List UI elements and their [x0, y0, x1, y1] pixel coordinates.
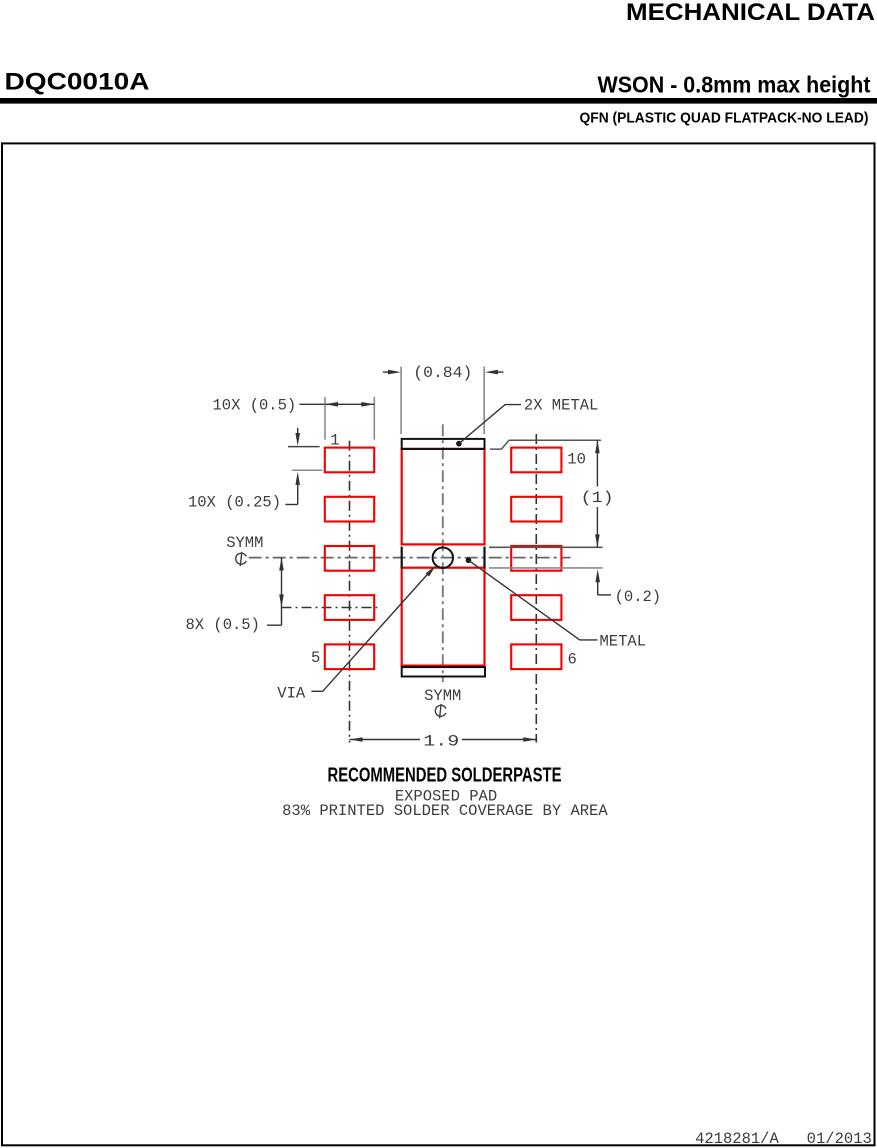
- svg-text:MECHANICAL DATA: MECHANICAL DATA: [626, 0, 875, 26]
- svg-text:6: 6: [568, 651, 577, 669]
- svg-text:DQC0010A: DQC0010A: [5, 68, 150, 95]
- svg-text:83% PRINTED SOLDER COVERAGE BY: 83% PRINTED SOLDER COVERAGE BY AREA: [282, 802, 608, 820]
- svg-text:SYMM: SYMM: [226, 534, 263, 552]
- svg-text:1.9: 1.9: [423, 732, 459, 750]
- svg-text:RECOMMENDED SOLDERPASTE: RECOMMENDED SOLDERPASTE: [328, 764, 562, 786]
- svg-text:WSON - 0.8mm max height: WSON - 0.8mm max height: [598, 72, 871, 98]
- svg-text:METAL: METAL: [600, 633, 647, 651]
- svg-text:10X (0.25): 10X (0.25): [188, 493, 281, 511]
- svg-text:5: 5: [311, 649, 320, 667]
- svg-text:(0.2): (0.2): [615, 588, 662, 606]
- svg-text:4218281/A 01/2013: 4218281/A 01/2013: [695, 1130, 872, 1148]
- svg-text:(1): (1): [581, 489, 614, 507]
- svg-text:8X (0.5): 8X (0.5): [186, 616, 260, 634]
- svg-text:SYMM: SYMM: [424, 687, 461, 705]
- svg-text:2X METAL: 2X METAL: [524, 397, 598, 415]
- svg-text:10: 10: [567, 451, 586, 469]
- svg-text:1: 1: [330, 432, 339, 450]
- svg-text:VIA: VIA: [277, 685, 306, 703]
- svg-text:10X (0.5): 10X (0.5): [213, 396, 297, 414]
- svg-text:(0.84): (0.84): [413, 364, 472, 382]
- svg-text:QFN (PLASTIC QUAD FLATPACK-NO: QFN (PLASTIC QUAD FLATPACK-NO LEAD): [580, 109, 869, 126]
